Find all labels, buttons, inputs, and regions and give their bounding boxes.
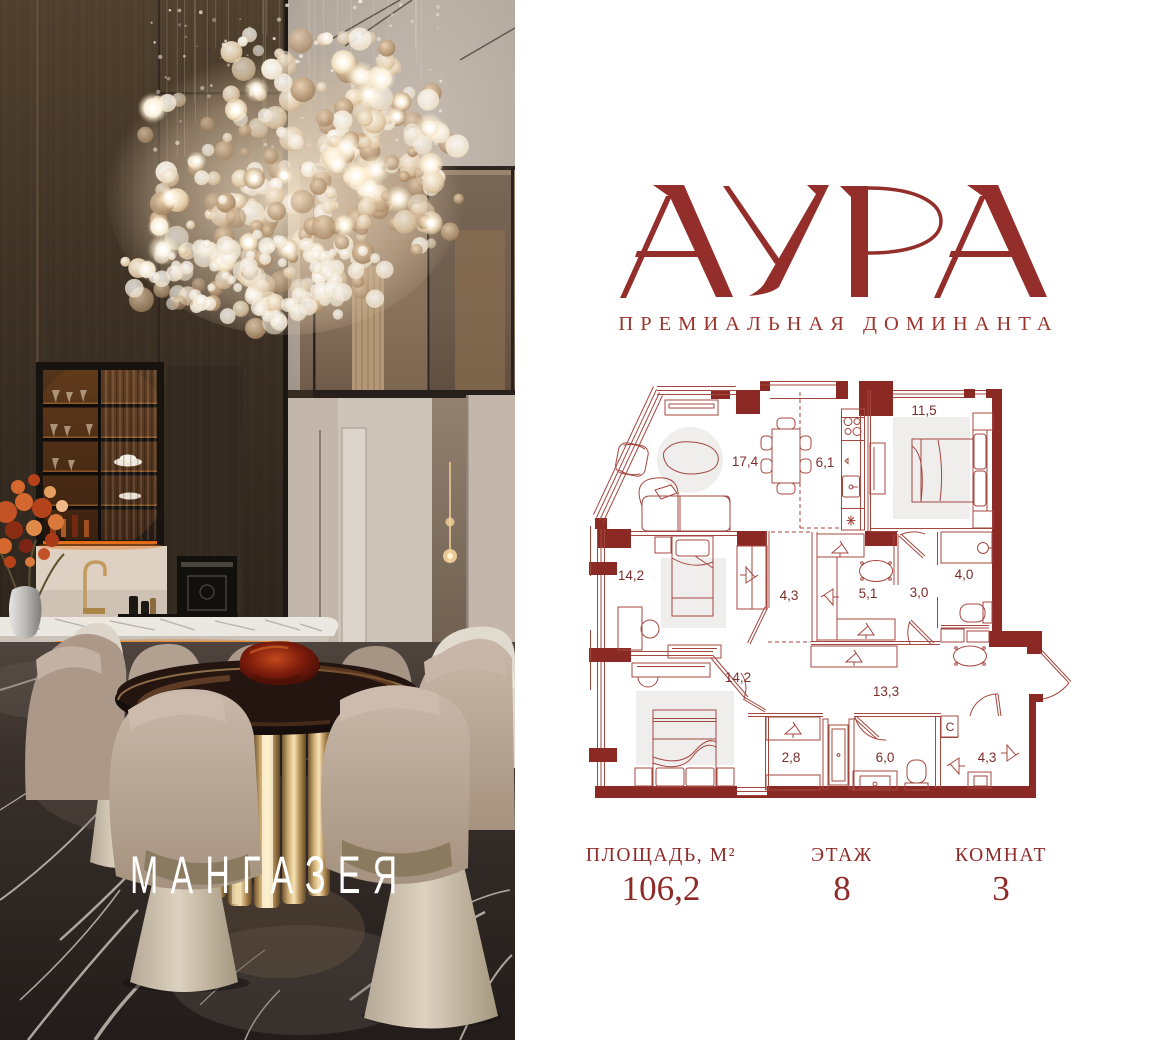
svg-text:4,3: 4,3 — [978, 750, 997, 765]
svg-text:14,2: 14,2 — [725, 670, 751, 685]
svg-text:3,0: 3,0 — [910, 585, 929, 600]
svg-text:4,0: 4,0 — [955, 567, 974, 582]
svg-text:13,3: 13,3 — [873, 684, 899, 699]
svg-text:14,2: 14,2 — [618, 568, 644, 583]
svg-text:6,0: 6,0 — [876, 750, 895, 765]
svg-text:4,3: 4,3 — [780, 588, 799, 603]
svg-text:2,8: 2,8 — [782, 750, 801, 765]
svg-text:С: С — [946, 720, 955, 734]
svg-text:11,5: 11,5 — [911, 403, 936, 418]
svg-text:5,1: 5,1 — [859, 586, 878, 601]
svg-text:6,1: 6,1 — [816, 455, 835, 470]
svg-text:17,4: 17,4 — [732, 454, 759, 469]
